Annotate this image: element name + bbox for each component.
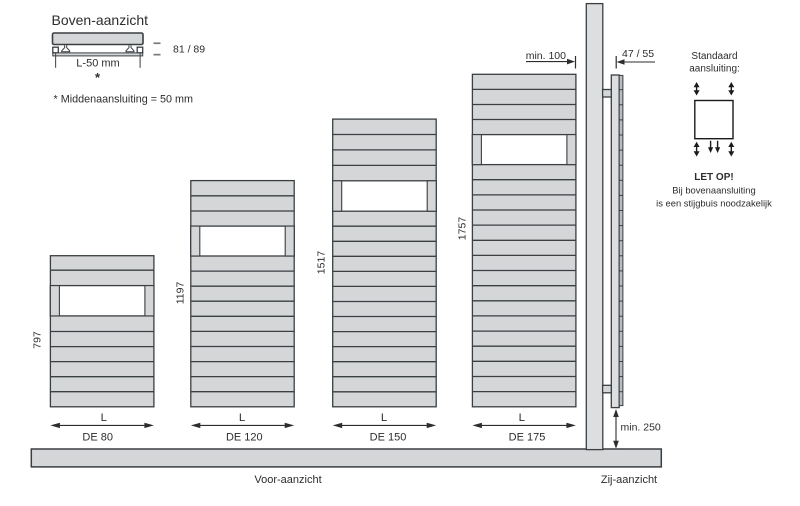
svg-text:L: L — [519, 412, 525, 424]
svg-text:DE 80: DE 80 — [82, 431, 113, 443]
svg-text:is een stijgbuis noodzakelijk: is een stijgbuis noodzakelijk — [656, 198, 772, 209]
svg-text:L: L — [239, 412, 245, 424]
svg-text:L-50 mm: L-50 mm — [76, 58, 119, 70]
svg-text:81 / 89: 81 / 89 — [173, 44, 205, 56]
svg-text:Bij bovenaansluiting: Bij bovenaansluiting — [672, 185, 755, 196]
svg-text:min. 100: min. 100 — [526, 50, 566, 62]
svg-text:aansluiting:: aansluiting: — [689, 64, 740, 75]
svg-text:* Middenaansluiting = 50 mm: * Middenaansluiting = 50 mm — [54, 94, 194, 106]
svg-text:DE 175: DE 175 — [509, 431, 546, 443]
svg-text:1517: 1517 — [316, 251, 328, 275]
svg-text:1757: 1757 — [457, 217, 469, 241]
svg-text:Voor-aanzicht: Voor-aanzicht — [254, 474, 321, 486]
svg-text:L: L — [101, 412, 107, 424]
svg-text:Standaard: Standaard — [691, 51, 737, 62]
svg-text:797: 797 — [32, 331, 44, 349]
svg-text:Zij-aanzicht: Zij-aanzicht — [601, 474, 657, 486]
svg-text:DE 120: DE 120 — [226, 431, 263, 443]
svg-text:Boven-aanzicht: Boven-aanzicht — [52, 12, 149, 28]
svg-text:47 / 55: 47 / 55 — [622, 48, 654, 60]
svg-text:DE 150: DE 150 — [370, 431, 407, 443]
svg-text:1197: 1197 — [175, 282, 187, 305]
svg-text:LET OP!: LET OP! — [694, 172, 733, 183]
svg-text:L: L — [381, 412, 387, 424]
svg-text:min. 250: min. 250 — [621, 422, 661, 434]
